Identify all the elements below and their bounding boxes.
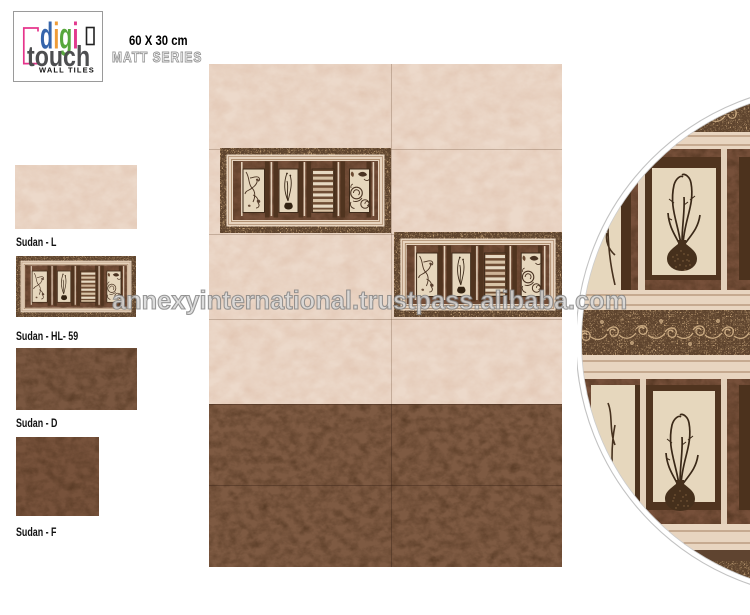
svg-text:WALL TILES: WALL TILES (39, 66, 95, 75)
